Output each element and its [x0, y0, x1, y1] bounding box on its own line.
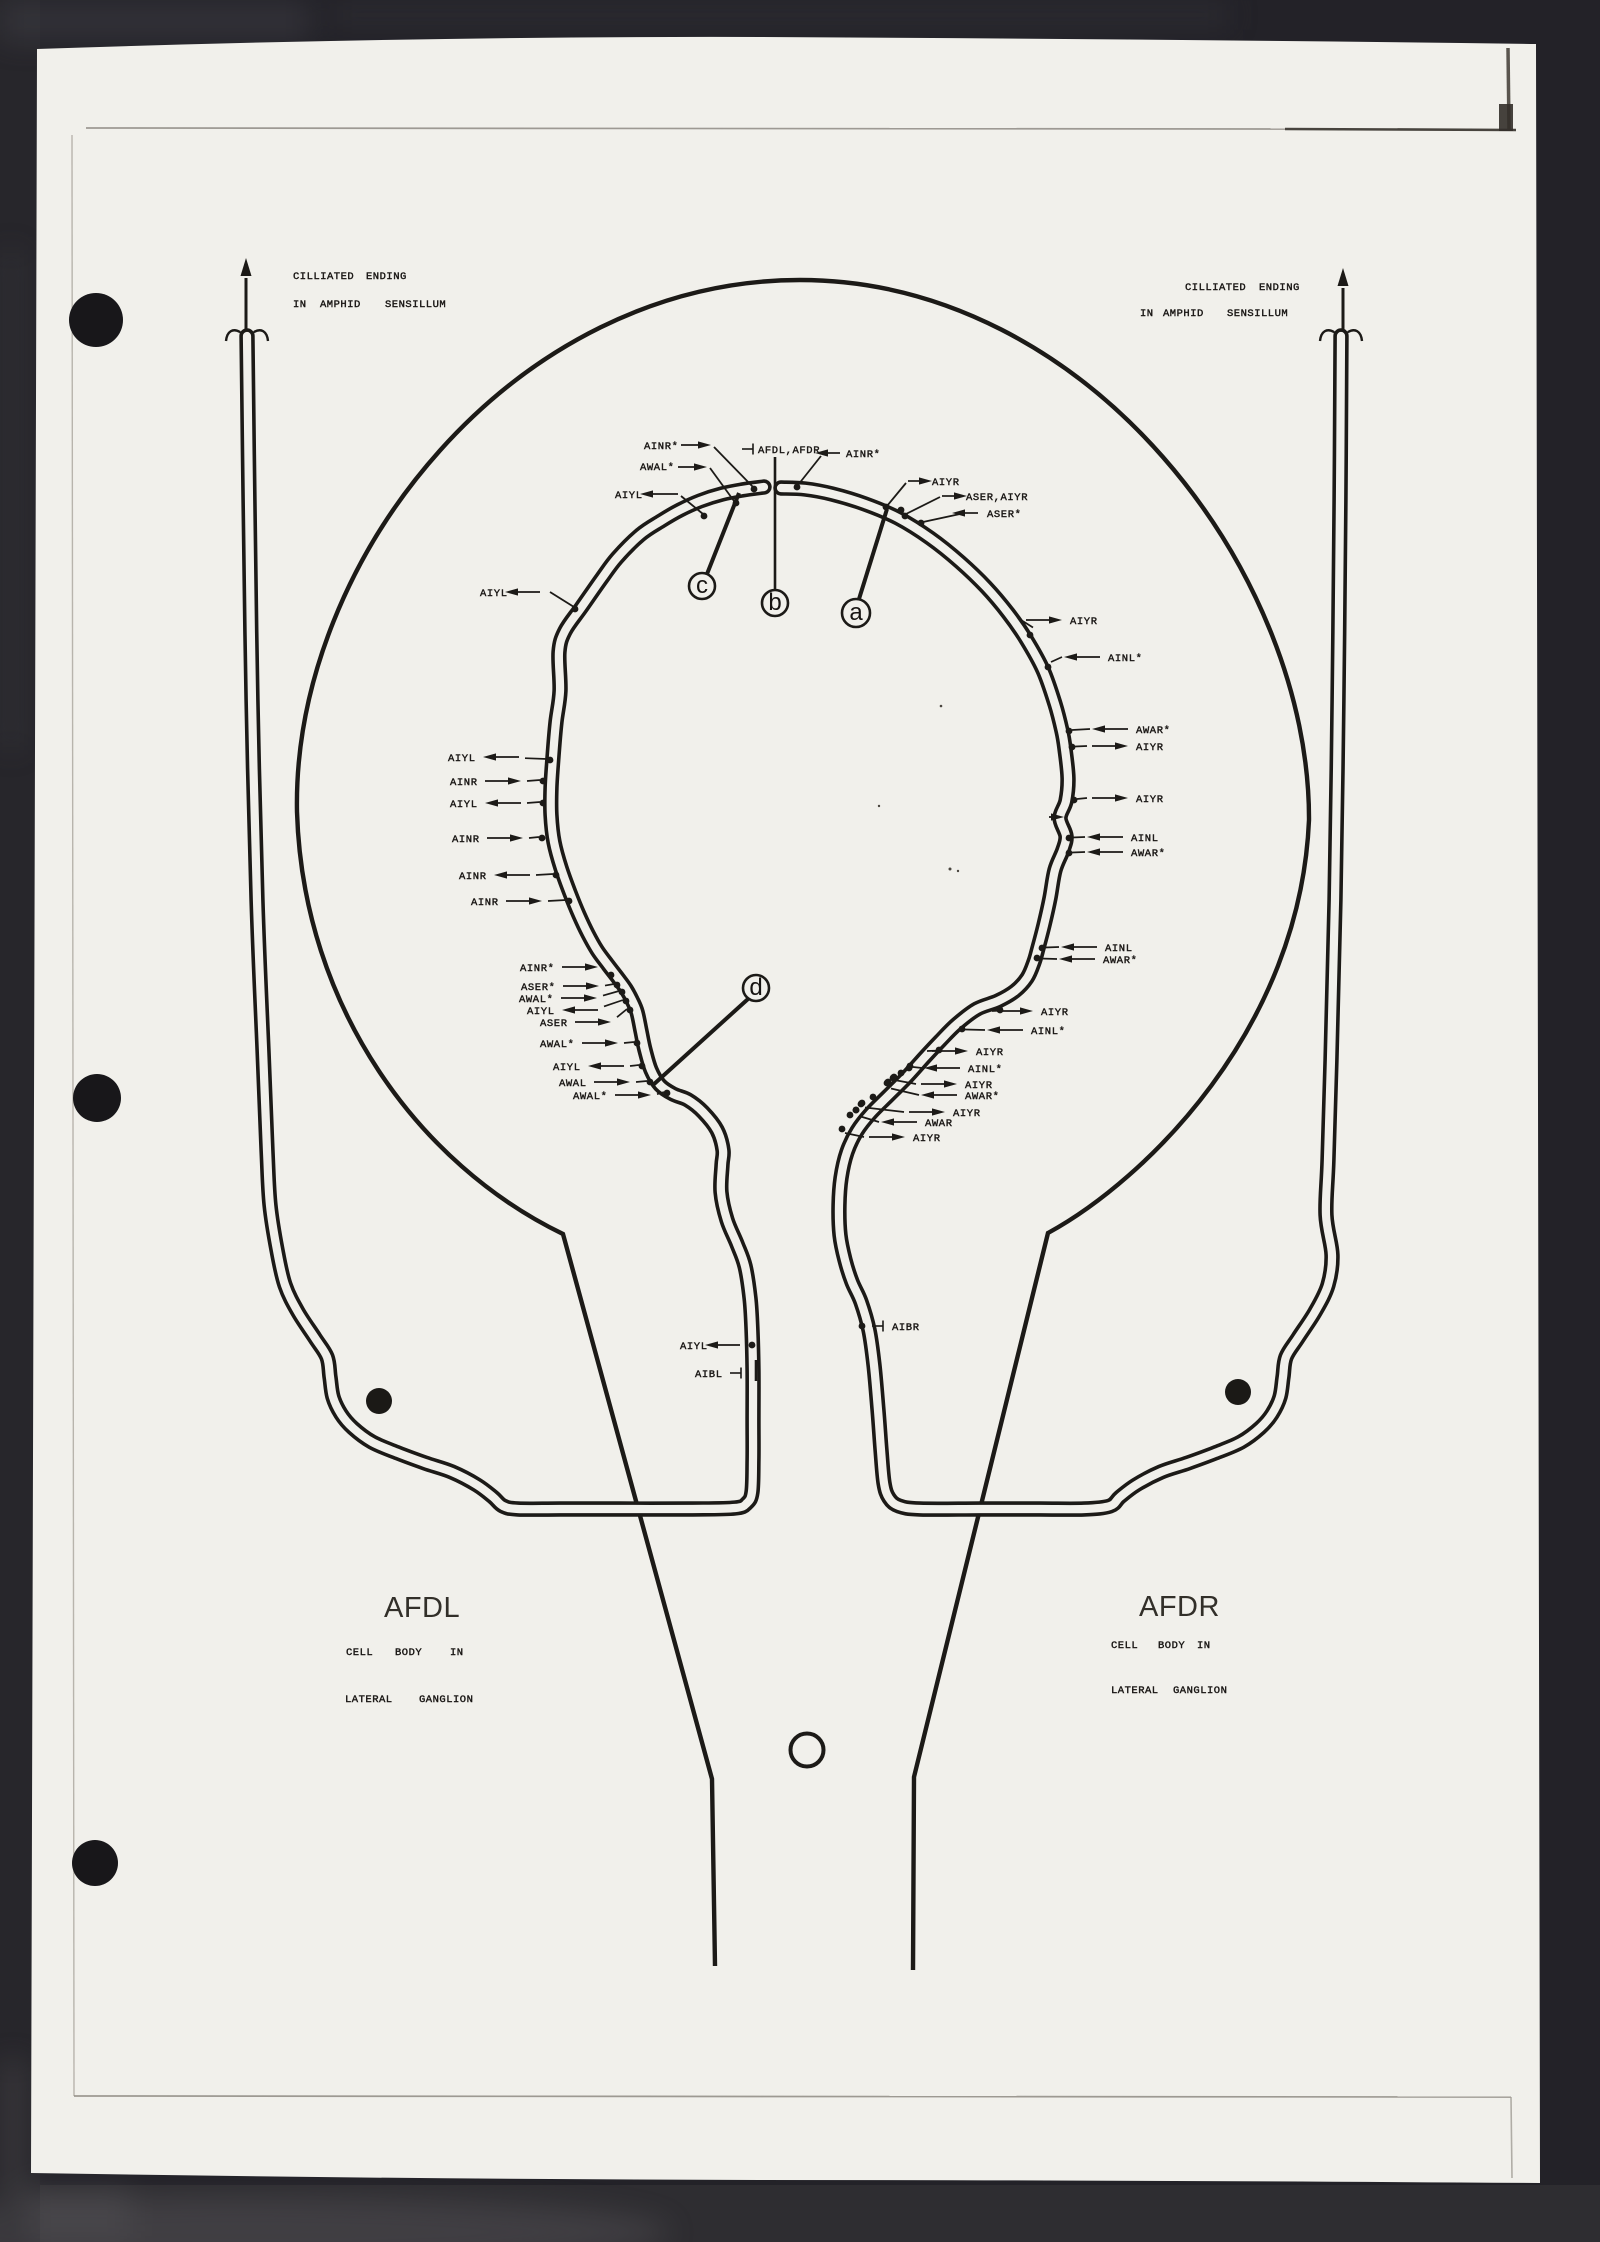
svg-text:BODY: BODY [395, 1647, 422, 1659]
svg-text:IN: IN [1140, 308, 1154, 320]
svg-text:AIYR: AIYR [976, 1047, 1004, 1059]
svg-text:AWAR: AWAR [925, 1118, 953, 1130]
svg-text:BODY: BODY [1158, 1640, 1185, 1652]
svg-text:AINR: AINR [471, 897, 499, 909]
svg-text:CILLIATED: CILLIATED [293, 271, 354, 283]
svg-text:AIBL: AIBL [695, 1369, 723, 1381]
svg-text:AIYL: AIYL [527, 1006, 555, 1018]
svg-text:IN: IN [293, 299, 307, 311]
svg-text:c: c [696, 572, 708, 599]
svg-text:AIYL: AIYL [450, 799, 478, 811]
svg-text:LATERAL: LATERAL [1111, 1685, 1159, 1697]
svg-text:AINL: AINL [1105, 943, 1133, 955]
svg-text:AIYL: AIYL [615, 490, 643, 502]
svg-text:AIYR: AIYR [913, 1133, 941, 1145]
svg-text:SENSILLUM: SENSILLUM [1227, 308, 1288, 320]
svg-text:AWAL*: AWAL* [540, 1039, 575, 1051]
svg-text:AWAL*: AWAL* [640, 462, 675, 474]
svg-text:AWAR*: AWAR* [1103, 955, 1138, 967]
svg-text:ENDING: ENDING [1259, 282, 1300, 294]
svg-text:AINL*: AINL* [1031, 1026, 1066, 1038]
svg-text:AINR*: AINR* [644, 441, 679, 453]
svg-text:AINL*: AINL* [968, 1064, 1003, 1076]
svg-text:AMPHID: AMPHID [320, 299, 361, 311]
svg-text:SENSILLUM: SENSILLUM [385, 299, 446, 311]
svg-text:AIYR: AIYR [1041, 1007, 1069, 1019]
svg-text:AIYL: AIYL [680, 1341, 708, 1353]
svg-text:LATERAL: LATERAL [345, 1694, 393, 1706]
svg-text:AFDL: AFDL [384, 1592, 460, 1624]
svg-text:IN: IN [1197, 1640, 1211, 1652]
svg-text:a: a [849, 599, 863, 626]
svg-text:AMPHID: AMPHID [1163, 308, 1204, 320]
svg-text:CILLIATED: CILLIATED [1185, 282, 1246, 294]
svg-text:b: b [768, 589, 781, 616]
svg-text:AINL: AINL [1131, 833, 1159, 845]
svg-text:AIYR: AIYR [1136, 742, 1164, 754]
svg-text:CELL: CELL [1111, 1640, 1138, 1652]
svg-text:AIYR: AIYR [953, 1108, 981, 1120]
svg-text:ASER*: ASER* [521, 982, 556, 994]
svg-text:AINL*: AINL* [1108, 653, 1143, 665]
svg-text:ASER,AIYR: ASER,AIYR [966, 492, 1028, 504]
svg-text:d: d [749, 974, 762, 1001]
svg-text:AINR*: AINR* [846, 449, 881, 461]
svg-text:AIYL: AIYL [553, 1062, 581, 1074]
svg-text:AINR: AINR [459, 871, 487, 883]
svg-text:AIYR: AIYR [1136, 794, 1164, 806]
svg-text:AWAL*: AWAL* [573, 1091, 608, 1103]
svg-text:AWAL*: AWAL* [519, 994, 554, 1006]
svg-text:AWAR*: AWAR* [1131, 848, 1166, 860]
svg-text:GANGLION: GANGLION [1173, 1685, 1227, 1697]
svg-text:AIYR: AIYR [1070, 616, 1098, 628]
svg-text:AIYL: AIYL [448, 753, 476, 765]
svg-text:ASER: ASER [540, 1018, 568, 1030]
svg-text:IN: IN [450, 1647, 464, 1659]
svg-text:AIYL: AIYL [480, 588, 508, 600]
svg-text:ASER*: ASER* [987, 509, 1022, 521]
svg-text:AFDL,AFDR: AFDL,AFDR [758, 445, 820, 457]
svg-text:GANGLION: GANGLION [419, 1694, 473, 1706]
svg-text:AIYR: AIYR [932, 477, 960, 489]
svg-text:AINR*: AINR* [520, 963, 555, 975]
svg-text:ENDING: ENDING [366, 271, 407, 283]
svg-text:AFDR: AFDR [1139, 1591, 1220, 1623]
svg-text:AIBR: AIBR [892, 1322, 920, 1334]
svg-text:AINR: AINR [452, 834, 480, 846]
svg-text:AINR: AINR [450, 777, 478, 789]
svg-text:AWAL: AWAL [559, 1078, 587, 1090]
svg-text:AWAR*: AWAR* [965, 1091, 1000, 1103]
svg-text:CELL: CELL [346, 1647, 373, 1659]
svg-text:AWAR*: AWAR* [1136, 725, 1171, 737]
